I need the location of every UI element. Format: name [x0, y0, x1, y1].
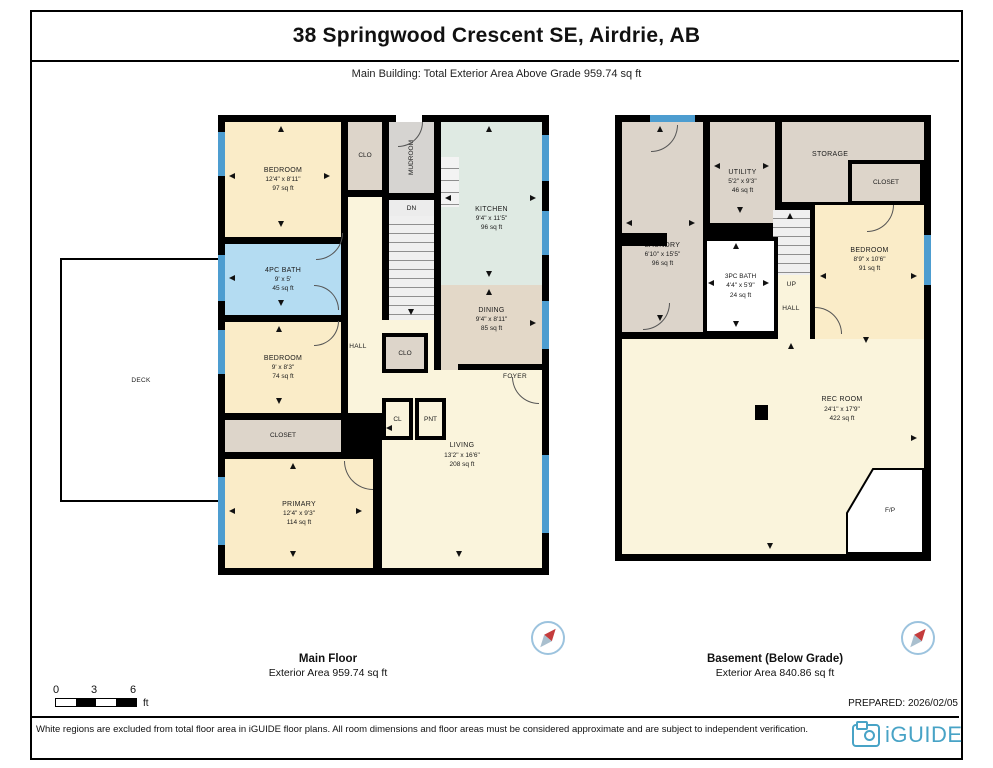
dimension-arrow — [278, 221, 284, 227]
dimension-arrow — [530, 195, 536, 201]
wall — [458, 364, 542, 370]
room-area: 85 sq ft — [481, 324, 502, 333]
hall-closet-box: CLO — [382, 333, 428, 373]
room-pnt: PNT — [419, 402, 442, 436]
room-laundry: LAUNDRY 6'10" x 15'5" 96 sq ft — [622, 122, 703, 332]
dimension-arrow — [911, 435, 917, 441]
dimension-arrow — [733, 243, 739, 249]
dimension-arrow — [657, 315, 663, 321]
dimension-arrow — [911, 273, 917, 279]
title-divider — [30, 60, 959, 62]
dimension-arrow — [863, 337, 869, 343]
dimension-arrow — [486, 289, 492, 295]
dimension-arrow — [763, 163, 769, 169]
room-area: 46 sq ft — [732, 186, 753, 195]
dimension-arrow — [486, 126, 492, 132]
room-name: BEDROOM — [264, 354, 302, 364]
basement-plan: LAUNDRY 6'10" x 15'5" 96 sq ft UTILITY 5… — [615, 115, 931, 561]
floor-plan-page: 38 Springwood Crescent SE, Airdrie, AB M… — [0, 0, 993, 768]
dimension-arrow — [290, 551, 296, 557]
room-dims: 5'2" x 9'3" — [728, 177, 756, 186]
page-subtitle: Main Building: Total Exterior Area Above… — [0, 68, 993, 80]
basement-caption: Basement (Below Grade) Exterior Area 840… — [665, 653, 885, 679]
dimension-arrow — [714, 163, 720, 169]
dimension-arrow — [324, 173, 330, 179]
scale-bar: 0 3 6 ft — [55, 684, 137, 707]
room-area: 114 sq ft — [287, 518, 311, 527]
footer-divider — [30, 716, 959, 718]
dimension-arrow — [276, 326, 282, 332]
room-name: MUDROOM — [407, 140, 416, 175]
dimension-arrow — [708, 280, 714, 286]
compass-needle — [906, 626, 929, 651]
compass-needle — [536, 626, 559, 651]
room-area: 422 sq ft — [830, 414, 855, 423]
window-marker — [218, 132, 225, 176]
structural-post — [755, 405, 768, 420]
floor-area: Exterior Area 959.74 sq ft — [218, 667, 438, 679]
window-marker — [542, 301, 549, 349]
dimension-arrow — [229, 173, 235, 179]
room-rec-label: REC ROOM 24'1" x 17'9" 422 sq ft — [787, 387, 897, 431]
window-marker — [218, 477, 225, 545]
room-dims: 9'4" x 11'5" — [476, 214, 508, 223]
stair-direction-arrow — [787, 213, 793, 219]
room-closet-basement: CLOSET — [852, 164, 920, 201]
scale-ticks: 0 3 6 — [55, 684, 137, 697]
compass-icon — [531, 621, 565, 655]
basement-closet-box: CLOSET — [848, 160, 924, 205]
scale-bar-segments — [55, 698, 137, 707]
room-name: BEDROOM — [264, 166, 302, 176]
room-area: 91 sq ft — [859, 264, 880, 273]
room-closet: CLOSET — [225, 420, 341, 452]
room-bedroom-1: BEDROOM 12'4" x 8'11" 97 sq ft — [225, 122, 341, 237]
main-floor-caption: Main Floor Exterior Area 959.74 sq ft — [218, 653, 438, 679]
dimension-arrow — [278, 300, 284, 306]
page-title: 38 Springwood Crescent SE, Airdrie, AB — [0, 24, 993, 48]
stairs-up — [773, 210, 810, 275]
stairs-label: DN — [389, 200, 434, 216]
room-name: STORAGE — [812, 150, 848, 160]
dimension-arrow — [445, 195, 451, 201]
room-label-fireplace: F/P — [860, 507, 920, 514]
dimension-arrow — [657, 126, 663, 132]
dimension-arrow — [530, 320, 536, 326]
room-dims: 4'4" x 5'9" — [726, 281, 754, 290]
dimension-arrow — [820, 273, 826, 279]
dimension-arrow — [626, 220, 632, 226]
iguide-brand-text: iGUIDE — [885, 722, 963, 748]
wall — [434, 285, 441, 370]
room-closet-hall: CLO — [386, 337, 424, 369]
room-dims: 8'9" x 10'6" — [853, 255, 885, 264]
deck-outline: DECK — [60, 258, 222, 502]
stair-treads — [389, 216, 434, 320]
room-name: DINING — [478, 306, 504, 316]
door-opening — [396, 115, 422, 122]
floor-name: Main Floor — [218, 653, 438, 665]
room-name: CLOSET — [270, 431, 296, 440]
iguide-logo: iGUIDE — [852, 722, 963, 748]
room-dining: DINING 9'4" x 8'11" 85 sq ft — [441, 285, 542, 370]
stair-direction-arrow — [408, 309, 414, 315]
pnt-pantry-box: PNT — [415, 398, 446, 440]
dimension-arrow — [229, 508, 235, 514]
window-marker — [542, 135, 549, 181]
main-floor-plan: BEDROOM 12'4" x 8'11" 97 sq ft CLO MUDRO… — [218, 115, 549, 575]
dimension-arrow — [767, 543, 773, 549]
stairs-up-label: UP — [773, 281, 810, 288]
room-area: 97 sq ft — [272, 184, 293, 193]
room-area: 24 sq ft — [730, 291, 751, 300]
window-marker — [218, 330, 225, 374]
dimension-arrow — [229, 275, 235, 281]
room-area: 74 sq ft — [272, 372, 293, 381]
room-dims: 12'4" x 8'11" — [265, 175, 300, 184]
dimension-arrow — [733, 321, 739, 327]
scale-tick: 3 — [91, 684, 97, 696]
room-name: BEDROOM — [850, 246, 888, 256]
room-dims: 12'4" x 9'3" — [283, 509, 315, 518]
room-dims: 9' x 8'3" — [272, 363, 295, 372]
room-closet-top: CLO — [348, 122, 382, 190]
dimension-arrow — [689, 220, 695, 226]
room-dims: 24'1" x 17'9" — [824, 405, 860, 414]
window-marker — [542, 211, 549, 255]
room-name: PRIMARY — [282, 500, 316, 510]
dimension-arrow — [386, 425, 392, 431]
floor-name: Basement (Below Grade) — [665, 653, 885, 665]
bath-3pc-box: 3PC BATH 4'4" x 5'9" 24 sq ft — [703, 237, 778, 335]
iguide-camera-icon — [852, 724, 880, 747]
dimension-arrow — [486, 271, 492, 277]
dimension-arrow — [278, 126, 284, 132]
room-area: 96 sq ft — [652, 259, 673, 268]
room-dims: 9' x 5' — [275, 275, 292, 284]
stairs-down: DN — [389, 200, 434, 320]
scale-unit: ft — [143, 698, 149, 709]
room-dims: 9'4" x 8'11" — [476, 315, 508, 324]
scale-tick: 0 — [53, 684, 59, 696]
room-name: LIVING — [450, 441, 475, 451]
window-marker — [924, 235, 931, 285]
dimension-arrow — [763, 280, 769, 286]
room-name: KITCHEN — [475, 205, 508, 215]
room-name: 4PC BATH — [265, 266, 301, 276]
window-marker — [218, 255, 225, 301]
prepared-date: PREPARED: 2026/02/05 — [848, 698, 958, 709]
dimension-arrow — [290, 463, 296, 469]
dimension-arrow — [737, 207, 743, 213]
dimension-arrow — [276, 398, 282, 404]
scale-tick: 6 — [130, 684, 136, 696]
compass-icon — [901, 621, 935, 655]
dimension-arrow — [788, 343, 794, 349]
wall — [622, 233, 667, 246]
room-name: 3PC BATH — [725, 272, 756, 281]
room-name: REC ROOM — [822, 395, 863, 405]
room-name: CLO — [358, 151, 371, 160]
room-dims: 13'2" x 16'6" — [444, 451, 480, 460]
window-marker — [542, 455, 549, 533]
window-marker — [650, 115, 695, 122]
room-name: UTILITY — [728, 168, 756, 178]
room-label-deck: DECK — [131, 377, 150, 384]
room-bath-3pc: 3PC BATH 4'4" x 5'9" 24 sq ft — [707, 241, 774, 331]
disclaimer-text: White regions are excluded from total fl… — [36, 724, 836, 735]
stair-treads — [773, 210, 810, 275]
cl-closet-box: CL — [382, 398, 413, 440]
room-area: 45 sq ft — [272, 284, 293, 293]
room-label-hall: HALL — [333, 343, 383, 350]
floor-area: Exterior Area 840.86 sq ft — [665, 667, 885, 679]
dimension-arrow — [456, 551, 462, 557]
room-area: 96 sq ft — [481, 223, 502, 232]
room-dims: 6'10" x 15'5" — [645, 250, 681, 259]
room-area: 208 sq ft — [450, 460, 475, 469]
dimension-arrow — [356, 508, 362, 514]
